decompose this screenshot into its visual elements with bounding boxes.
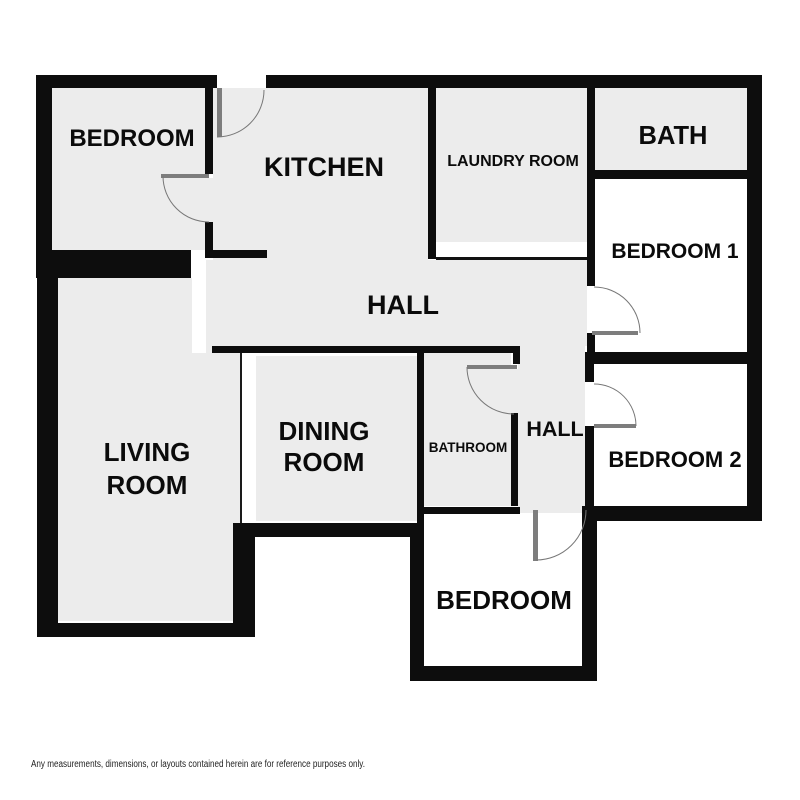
svg-text:BEDROOM 1: BEDROOM 1 [611,240,739,263]
svg-text:BEDROOM 2: BEDROOM 2 [608,447,741,472]
svg-text:ROOM: ROOM [107,470,188,500]
svg-text:BATH: BATH [639,122,708,150]
svg-text:KITCHEN: KITCHEN [264,152,384,182]
svg-text:HALL: HALL [526,417,583,441]
svg-text:BEDROOM: BEDROOM [436,585,572,615]
svg-text:DINING: DINING [279,416,370,446]
svg-text:ROOM: ROOM [284,447,365,477]
svg-text:BEDROOM: BEDROOM [69,125,194,152]
svg-text:Any measurements, dimensions,: Any measurements, dimensions, or layouts… [31,759,365,770]
svg-text:BATHROOM: BATHROOM [429,440,508,455]
svg-text:HALL: HALL [367,290,439,320]
svg-text:LIVING: LIVING [104,437,191,467]
svg-text:LAUNDRY ROOM: LAUNDRY ROOM [447,153,579,170]
